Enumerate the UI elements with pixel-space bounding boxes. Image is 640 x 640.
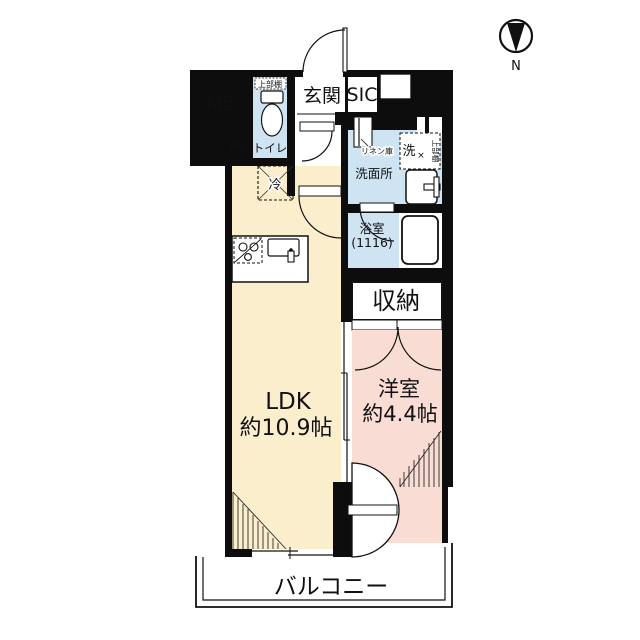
bathroom-label: 浴室 xyxy=(359,221,384,236)
washer-cross-mark: × xyxy=(417,151,425,161)
wall-segment xyxy=(335,112,352,125)
bathroom-door-leaf xyxy=(360,203,394,212)
ldk-room xyxy=(232,166,341,549)
linen-label: リネン庫 xyxy=(361,146,393,156)
washer-shelf-label: 上部棚 xyxy=(431,140,441,163)
hall-door-leaf xyxy=(300,122,334,131)
balcony-label: バルコニー xyxy=(274,574,389,600)
mb-label: MB xyxy=(207,93,235,114)
balcony-door-leaf xyxy=(348,505,397,515)
sic-label: SIC xyxy=(347,84,378,106)
compass-label: N xyxy=(511,59,521,74)
washer-label: 洗 xyxy=(402,144,415,159)
entrance-door-arc xyxy=(303,30,345,72)
sink-faucet-knob xyxy=(289,248,293,252)
ldk-window-opening xyxy=(252,549,333,557)
wall-segment xyxy=(333,482,352,557)
entrance-door-leaf xyxy=(343,28,347,72)
ps-label: PS xyxy=(229,138,248,156)
wall-segment xyxy=(225,156,232,557)
linen-cabinet xyxy=(354,117,372,147)
toilet-shelf-label: 上部棚 xyxy=(258,79,282,89)
ldk-label: LDK xyxy=(265,389,312,415)
sink-faucet xyxy=(288,251,294,262)
basin-faucet-handle xyxy=(434,177,439,197)
sliding-partition-channel xyxy=(341,322,351,482)
entrance-label: 玄関 xyxy=(303,85,341,107)
entrance-door-opening xyxy=(303,70,343,77)
toilet-bowl xyxy=(262,104,283,136)
wall-segment xyxy=(341,268,453,282)
ldk-size-label: 約10.9帖 xyxy=(240,416,333,441)
bathtub xyxy=(402,216,438,264)
toilet-label: トイレ xyxy=(253,141,288,155)
wall-segment xyxy=(341,112,348,272)
hall-closet-box xyxy=(380,74,411,99)
ldk-door-leaf xyxy=(299,186,341,196)
floor-plan-drawing: N MB PS 上部棚 トイレ 玄関 SIC リネン庫 洗面所 洗 × 上部棚 … xyxy=(0,0,640,640)
wall-segment xyxy=(225,549,252,557)
wall-segment xyxy=(442,133,453,487)
compass: N xyxy=(500,20,532,74)
toilet-tank xyxy=(261,91,283,103)
wall-segment xyxy=(341,272,352,322)
western-room-label: 洋室 xyxy=(378,377,420,401)
refrigerator-label: 冷 xyxy=(268,178,281,193)
storage-label: 収納 xyxy=(372,287,420,315)
western-room-size-label: 約4.4帖 xyxy=(362,402,437,426)
floor-plan: N MB PS 上部棚 トイレ 玄関 SIC リネン庫 洗面所 洗 × 上部棚 … xyxy=(0,0,640,640)
kitchen xyxy=(232,236,308,282)
wall-segment xyxy=(287,70,295,196)
bathroom-size-label: (1116) xyxy=(351,235,393,250)
washroom-label: 洗面所 xyxy=(355,166,393,181)
